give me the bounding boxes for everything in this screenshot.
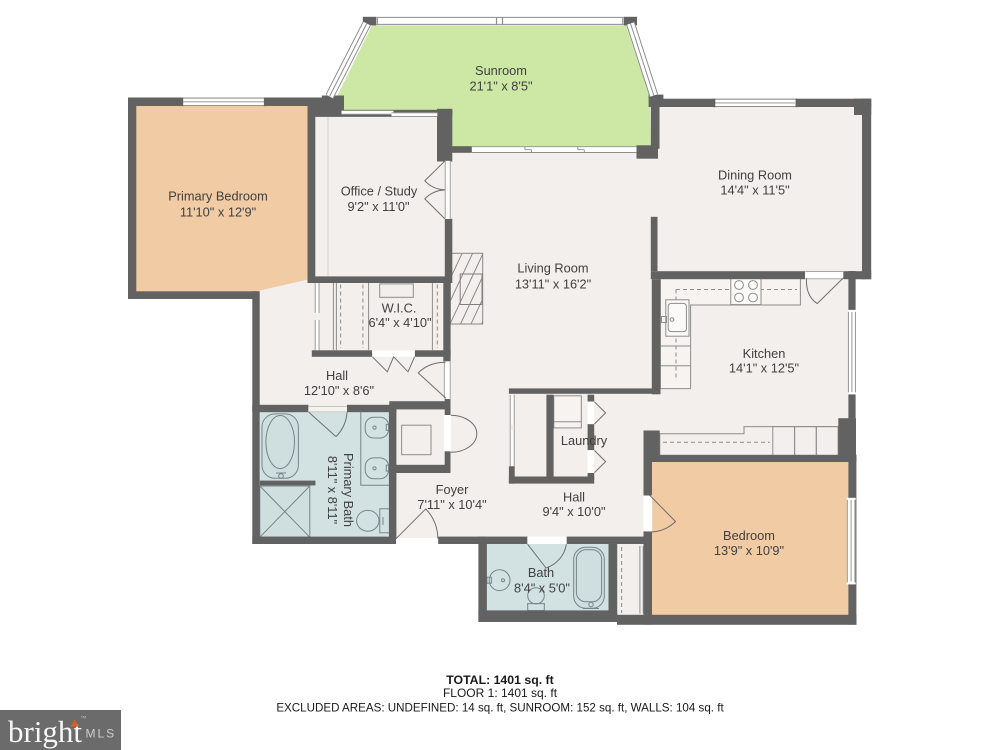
svg-text:Sunroom: Sunroom (475, 63, 527, 78)
svg-text:Hall: Hall (563, 490, 585, 505)
svg-text:14'1" x 12'5": 14'1" x 12'5" (729, 361, 799, 376)
svg-text:7'11" x 10'4": 7'11" x 10'4" (417, 497, 486, 512)
svg-text:8'4" x 5'0": 8'4" x 5'0" (514, 581, 570, 596)
svg-text:EXCLUDED AREAS: UNDEFINED: 14: EXCLUDED AREAS: UNDEFINED: 14 sq. ft, SU… (276, 702, 724, 715)
svg-text:Foyer: Foyer (436, 482, 469, 497)
svg-text:Kitchen: Kitchen (743, 346, 786, 361)
svg-text:12'10" x 8'6": 12'10" x 8'6" (304, 383, 374, 398)
svg-text:9'2" x 11'0": 9'2" x 11'0" (347, 199, 409, 214)
svg-text:6'4" x 4'10": 6'4" x 4'10" (368, 315, 431, 330)
svg-text:Hall: Hall (326, 368, 348, 383)
svg-text:21'1" x 8'5": 21'1" x 8'5" (469, 79, 532, 94)
svg-text:13'11" x 16'2": 13'11" x 16'2" (515, 277, 591, 292)
svg-text:Dining Room: Dining Room (718, 168, 792, 183)
svg-text:14'4" x 11'5": 14'4" x 11'5" (720, 183, 789, 198)
svg-text:Primary Bedroom: Primary Bedroom (168, 189, 268, 204)
svg-text:bright: bright (8, 714, 82, 749)
svg-text:11'10" x 12'9": 11'10" x 12'9" (180, 205, 256, 220)
svg-text:Bath: Bath (528, 565, 554, 580)
svg-text:FLOOR 1: 1401 sq. ft: FLOOR 1: 1401 sq. ft (443, 686, 558, 700)
svg-text:Living Room: Living Room (517, 261, 588, 276)
svg-text:Primary Bath: Primary Bath (341, 453, 356, 527)
svg-text:Laundry: Laundry (561, 433, 608, 448)
svg-text:W.I.C.: W.I.C. (382, 301, 417, 316)
svg-text:Office / Study: Office / Study (341, 184, 418, 199)
svg-text:9'4" x 10'0": 9'4" x 10'0" (542, 504, 605, 519)
svg-text:TOTAL: 1401 sq. ft: TOTAL: 1401 sq. ft (446, 673, 554, 687)
svg-text:13'9" x 10'9": 13'9" x 10'9" (714, 543, 784, 558)
svg-text:MLS: MLS (86, 727, 117, 741)
svg-text:Bedroom: Bedroom (723, 528, 775, 543)
svg-text:™: ™ (81, 715, 87, 722)
svg-text:8'11" x 8'11": 8'11" x 8'11" (325, 456, 340, 524)
